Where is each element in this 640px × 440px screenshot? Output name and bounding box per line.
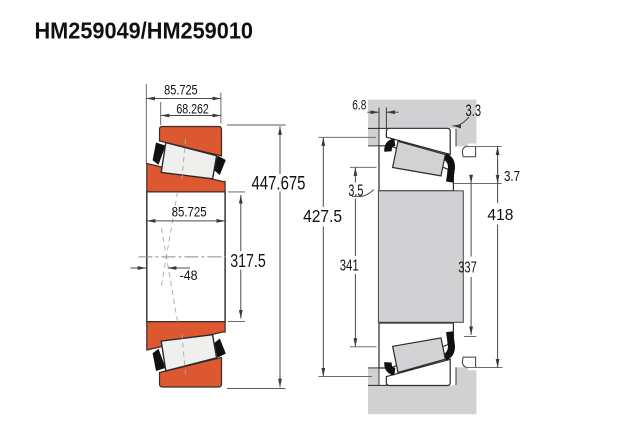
svg-text:85.725: 85.725 bbox=[164, 82, 198, 98]
svg-text:337: 337 bbox=[458, 260, 477, 277]
svg-text:447.675: 447.675 bbox=[252, 174, 306, 195]
svg-text:HM259049/HM259010: HM259049/HM259010 bbox=[35, 18, 254, 44]
svg-text:6.8: 6.8 bbox=[352, 97, 366, 113]
svg-text:418: 418 bbox=[487, 207, 513, 224]
svg-text:-48: -48 bbox=[180, 267, 198, 283]
svg-text:317.5: 317.5 bbox=[230, 251, 266, 271]
svg-text:85.725: 85.725 bbox=[172, 204, 207, 220]
svg-text:427.5: 427.5 bbox=[303, 206, 342, 226]
svg-text:341: 341 bbox=[340, 258, 359, 275]
svg-text:68.262: 68.262 bbox=[176, 101, 209, 117]
svg-text:3.3: 3.3 bbox=[466, 101, 482, 120]
svg-text:3.5: 3.5 bbox=[348, 181, 363, 200]
svg-text:3.7: 3.7 bbox=[504, 168, 520, 185]
